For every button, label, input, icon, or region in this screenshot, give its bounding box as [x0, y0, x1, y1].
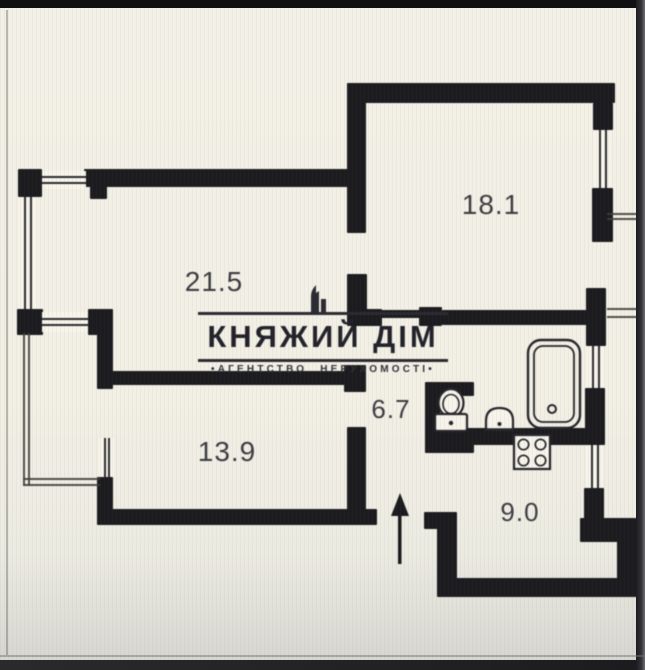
wall-segment [347, 427, 366, 525]
window [99, 438, 114, 477]
wall-segment [84, 169, 352, 187]
entrance-arrow-icon [391, 493, 409, 564]
window-pane-line [42, 324, 88, 326]
window-pane-line [42, 176, 86, 178]
floor-plan: 21.5 18.1 13.9 6.7 9.0 КНЯЖИЙ ДІМ •АГЕНТ… [0, 0, 645, 670]
window-pane-line [599, 130, 601, 188]
wall-segment [586, 288, 606, 346]
window [19, 197, 37, 309]
screen-right-strip [636, 0, 645, 670]
wall-segment [366, 310, 422, 318]
screen-bottom-bar [0, 660, 645, 670]
wall-segment [593, 103, 613, 130]
window-pane-line [592, 346, 594, 388]
window [42, 171, 86, 189]
wall-segment [90, 186, 107, 199]
room-area-kitchen: 9.0 [489, 497, 551, 528]
wall-segment [428, 382, 474, 396]
balcony-line [23, 484, 100, 486]
window-pane-line [24, 197, 26, 309]
bathtub-icon [528, 340, 580, 428]
window-pane-line [108, 438, 110, 477]
screen-top-bar [0, 0, 645, 8]
window [586, 445, 603, 488]
window-pane-line [42, 318, 88, 320]
wall-segment [442, 310, 588, 325]
wall-segment [424, 512, 457, 529]
window [594, 130, 611, 188]
window-pane-line [597, 445, 599, 488]
room-area-bedroom-right: 18.1 [450, 189, 532, 221]
window-pane-line [605, 130, 607, 188]
wall-segment [17, 309, 43, 335]
screen-bottom-seam [0, 655, 645, 657]
wall-segment [592, 188, 613, 242]
window-pane-line [598, 346, 600, 388]
room-area-hallway: 6.7 [360, 394, 422, 425]
window [42, 312, 88, 332]
wall-segment [464, 428, 590, 445]
wall-segment [97, 333, 113, 389]
room-area-bedroom-left: 13.9 [186, 436, 268, 468]
window-pane-line [42, 182, 86, 184]
balcony-line [23, 478, 100, 480]
wall-segment [419, 307, 442, 326]
floor-plan-photo: 21.5 18.1 13.9 6.7 9.0 КНЯЖИЙ ДІМ •АГЕНТ… [0, 0, 645, 670]
wall-segment [112, 371, 355, 385]
window-pane-line [104, 438, 106, 477]
balcony-line [28, 333, 30, 486]
window [587, 346, 604, 388]
wall-segment [110, 509, 377, 525]
building-skyline-icon [300, 283, 334, 313]
window-pane-line [30, 197, 32, 309]
wall-segment [437, 578, 637, 597]
wall-segment [88, 309, 113, 335]
wall-segment [344, 365, 366, 392]
wall-segment [437, 528, 457, 580]
wall-segment [18, 169, 42, 197]
room-area-living: 21.5 [173, 266, 255, 298]
screen-left-edge-line [6, 10, 8, 655]
sink-icon [486, 408, 513, 430]
wall-segment [347, 274, 367, 314]
logo-rule-bottom [198, 359, 448, 362]
window-pane-line [591, 445, 593, 488]
wall-segment [347, 83, 615, 103]
wall-segment [347, 83, 366, 233]
balcony-line [23, 333, 25, 486]
